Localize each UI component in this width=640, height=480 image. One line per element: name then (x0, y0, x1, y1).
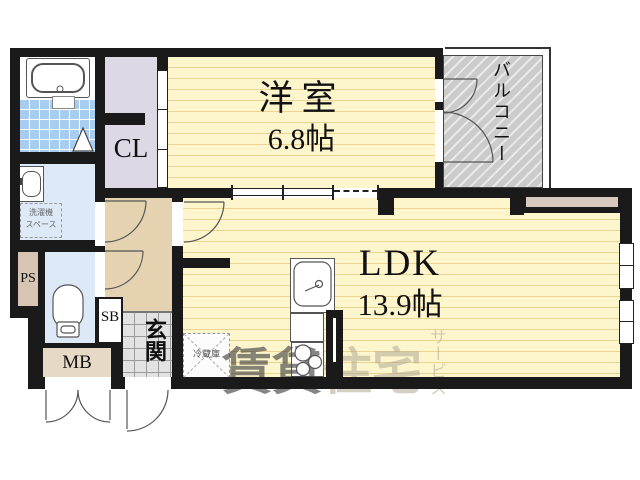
wall-left (10, 48, 20, 252)
window-ldk-lower (619, 300, 634, 344)
pillar-ldk-mid (510, 188, 524, 215)
hallway-floor (105, 197, 172, 313)
counter-inset (526, 197, 618, 207)
refrigerator-label: 冷蔵庫 (183, 349, 230, 361)
wall-closet-bottom (95, 188, 232, 198)
closet-door-divider-1 (157, 109, 168, 110)
doorway-ldk (172, 202, 183, 246)
washing-machine-label-line2: スペース (20, 219, 62, 231)
washing-machine-label-line1: 洗濯機 (20, 207, 62, 219)
closet-door-divider-2 (157, 149, 168, 150)
washbasin-bowl (22, 171, 41, 197)
ldk-label: LDK (300, 244, 500, 284)
closet-label: CL (105, 132, 157, 164)
balcony-label: バルコニー (488, 60, 514, 190)
doorway-toilet (95, 252, 105, 297)
watermark-part1: 賃貸 (222, 344, 322, 400)
door-arc-entrance (127, 390, 168, 431)
sliding-door-tick-3 (332, 185, 334, 200)
doorway-entrance (125, 377, 171, 389)
sliding-door-tick-1 (231, 185, 233, 200)
wall-below-ps (28, 308, 45, 345)
sliding-door-track (334, 190, 378, 192)
window-ldk-lower-mullion (619, 321, 634, 322)
toilet-floor (45, 252, 95, 345)
washing-machine-label: 洗濯機 スペース (20, 207, 62, 237)
wall-closet-stub (105, 113, 145, 125)
bathtub-inner (31, 63, 85, 93)
window-ldk-upper-mullion (619, 265, 634, 266)
meter-box-label: MB (43, 351, 111, 375)
watermark-text: 賃貸住宅 (222, 332, 422, 404)
doorway-mb (45, 377, 111, 389)
entrance-label: 玄関 (138, 318, 170, 376)
sliding-door-tick-2 (282, 185, 284, 200)
window-ldk-upper (619, 243, 634, 289)
wall-closet-door-top (157, 57, 168, 70)
closet-folding-door (157, 70, 168, 188)
western-room-label: 洋室 (168, 78, 435, 120)
wall-washroom-toilet (10, 240, 95, 252)
ldk-size: 13.9帖 (300, 287, 500, 323)
doorway-balcony-lower (435, 110, 443, 162)
floorplan-canvas: 賃貸住宅 サービス (0, 0, 640, 480)
wall-bath-bottom (10, 152, 105, 164)
door-arc-mb-left (46, 390, 78, 422)
bathtub-step (52, 96, 75, 109)
western-room-size: 6.8帖 (168, 122, 435, 158)
sliding-door-tick-4 (377, 185, 379, 200)
pillar-ldk-left (378, 188, 394, 215)
entrance-step-line (123, 311, 172, 313)
doorway-washroom (95, 202, 105, 246)
sliding-door-panel-1 (232, 188, 283, 196)
door-arc-mb-right (78, 390, 110, 422)
wall-kitchen-stub (183, 258, 230, 268)
pipe-space-label: PS (16, 270, 40, 288)
doorway-balcony-upper (435, 79, 443, 102)
shoe-box-label: SB (97, 308, 123, 328)
sliding-door-panel-2 (283, 188, 333, 196)
counter-stub-slit (333, 318, 336, 362)
wall-top (10, 48, 443, 57)
